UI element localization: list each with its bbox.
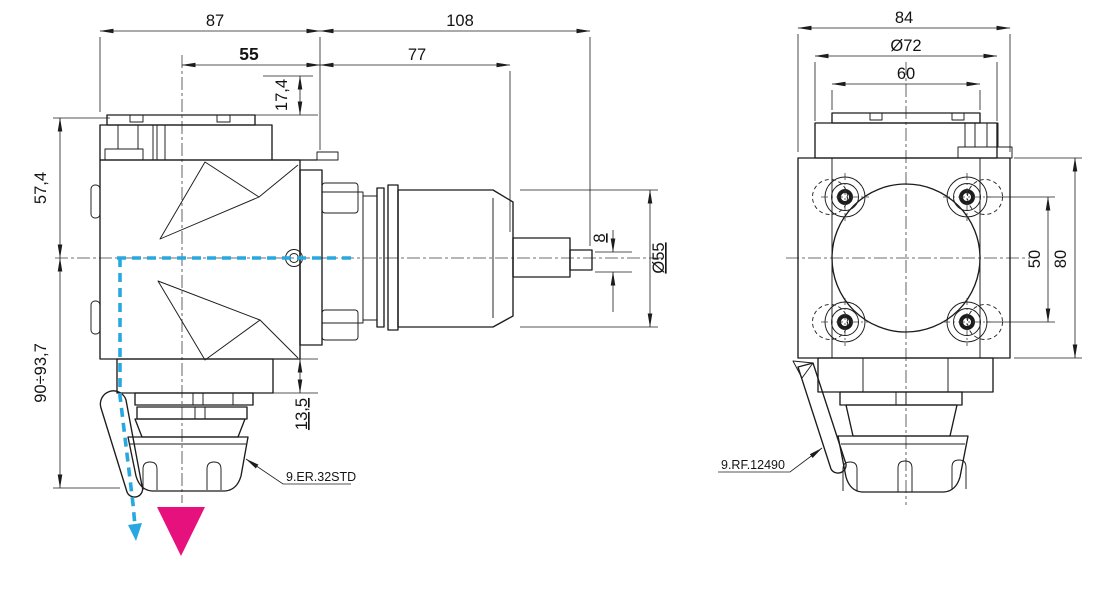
technical-drawing-angle-head: 87 108 55 77 17,4 57,4 90÷93,7 13,5 <box>0 0 1109 597</box>
clamp-bolt-bottom <box>322 310 358 340</box>
gear-line <box>259 165 298 197</box>
side-part <box>91 115 592 497</box>
coolant-label: 9.RF.12490 <box>721 458 785 472</box>
dim-17-4: 17,4 <box>273 79 291 111</box>
clamp-block <box>965 123 998 147</box>
dim-84: 84 <box>895 9 913 27</box>
dim-108: 108 <box>446 12 474 30</box>
dim-57-4: 57,4 <box>32 172 50 204</box>
nut-slot <box>898 461 912 492</box>
side-view: 87 108 55 77 17,4 57,4 90÷93,7 13,5 <box>32 12 668 556</box>
coolant-path-vertical <box>120 258 135 526</box>
front-dimensions: 84 Ø72 60 50 80 9.RF.12490 <box>718 9 1082 472</box>
collet-label: 9.ER.32STD <box>286 470 356 484</box>
clamping-cylinder <box>398 190 513 327</box>
dim-77: 77 <box>408 46 426 64</box>
nut-slot <box>207 462 221 490</box>
plate-notch <box>870 113 882 120</box>
dim-50: 50 <box>1026 250 1044 268</box>
bevel-gear-section-upper <box>160 162 259 239</box>
clamp-block <box>317 152 338 160</box>
bottom-ring <box>840 392 962 405</box>
dim-55: 55 <box>239 44 259 64</box>
coolant-arrow-icon <box>128 523 142 541</box>
dim-13-5: 13,5 <box>293 398 311 430</box>
top-plate <box>107 115 255 125</box>
drive-shaft <box>513 238 570 277</box>
coolant-path <box>117 258 355 541</box>
dim-87: 87 <box>206 12 224 30</box>
spindle-cone <box>135 419 245 437</box>
spindle-cone <box>846 405 957 436</box>
dim-8: 8 <box>591 233 609 242</box>
front-view: 84 Ø72 60 50 80 9.RF.12490 <box>718 9 1082 505</box>
drawing-canvas: 87 108 55 77 17,4 57,4 90÷93,7 13,5 <box>0 0 1109 597</box>
mount-bolts <box>813 173 1003 346</box>
dim-90-93-7: 90÷93,7 <box>32 343 50 403</box>
top-flange <box>100 125 272 160</box>
bottom-ring-2 <box>137 407 247 419</box>
coolant-tube <box>798 363 846 473</box>
clamp-bolt-top <box>322 183 358 213</box>
side-screw-boss <box>91 185 100 218</box>
dim-80: 80 <box>1052 250 1070 268</box>
nut-slot <box>143 462 157 490</box>
dim-60: 60 <box>897 65 915 83</box>
bevel-gear-section-lower <box>158 281 260 360</box>
nut-slot <box>952 460 966 489</box>
drive-tang <box>570 250 592 270</box>
nut-slot <box>843 462 857 491</box>
bottom-flange <box>818 358 993 392</box>
plate-notch <box>130 115 143 122</box>
feed-direction-arrow-icon <box>157 507 205 556</box>
collet-nut <box>128 437 248 491</box>
flange-foot <box>105 149 143 160</box>
gear-line <box>260 320 298 358</box>
ring-1 <box>377 188 384 327</box>
bottom-ring-1 <box>135 393 253 405</box>
dim-72dia: Ø72 <box>890 37 921 55</box>
plate-notch <box>217 115 230 122</box>
plate-notch <box>952 113 964 120</box>
side-screw-boss <box>91 301 100 334</box>
dim-55dia: Ø55 <box>650 242 668 273</box>
clamp-plate <box>958 147 1012 158</box>
bottom-flange <box>117 359 273 393</box>
ring-2 <box>388 185 398 330</box>
front-part <box>793 113 1012 492</box>
